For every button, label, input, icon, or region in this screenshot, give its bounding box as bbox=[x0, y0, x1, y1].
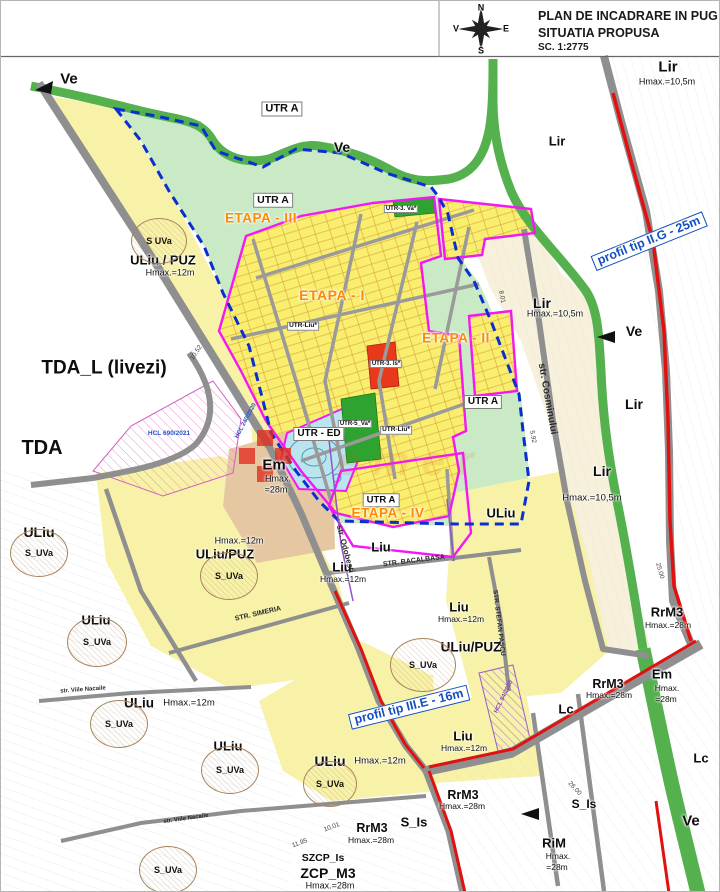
compass-n: N bbox=[478, 4, 485, 13]
ve-label: Ve bbox=[626, 324, 642, 338]
suva-circle: S_UVa bbox=[390, 638, 456, 692]
zone-hmax: Hmax. bbox=[265, 475, 291, 484]
suva-circle: S_UVa bbox=[10, 529, 68, 577]
zone-label-rim: RiM bbox=[542, 837, 566, 850]
zone-hmax: =28m bbox=[265, 486, 288, 495]
suva-circle: S_UVa bbox=[139, 846, 197, 892]
utr-a-label: UTR A bbox=[261, 102, 302, 117]
zone-hmax: Hmax. bbox=[546, 852, 571, 861]
ve-label: Ve bbox=[334, 140, 350, 154]
parcel-label: UTR-3. Va* bbox=[384, 205, 418, 213]
zone-hmax: Hmax.=10,5m bbox=[527, 310, 583, 319]
zone-hmax: =28m bbox=[655, 695, 677, 704]
zone-label-s-is: S_Is bbox=[401, 816, 428, 829]
parcel-label: UTR-3. Is* bbox=[370, 360, 402, 368]
zone-label-tda-l: TDA_L (livezi) bbox=[41, 359, 166, 378]
suva-circle: S_UVa bbox=[201, 746, 259, 794]
zone-label-lir: Lir bbox=[625, 397, 643, 411]
map-title-line2: SITUATIA PROPUSA bbox=[538, 26, 660, 40]
parcel-label: UTR-Liu* bbox=[287, 322, 319, 331]
suva-circle: S_UVa bbox=[200, 552, 258, 600]
zone-label-szcp-is: SZCP_Is bbox=[302, 853, 345, 864]
map-title-line1: PLAN DE INCADRARE IN PUG bbox=[538, 9, 718, 23]
zone-hmax: Hmax.=28m bbox=[439, 802, 485, 811]
zone-hmax: Hmax.=10,5m bbox=[639, 78, 695, 87]
dim-label: 8.01 bbox=[497, 290, 506, 304]
hcl-label: HCL 690/2021 bbox=[148, 431, 190, 438]
ve-label: Ve bbox=[60, 72, 78, 87]
zone-hmax: Hmax.=12m bbox=[320, 575, 366, 584]
zone-label-lir: Lir bbox=[593, 464, 611, 478]
zone-hmax: Hmax.=12m bbox=[146, 269, 195, 278]
zone-label-em: Em bbox=[652, 668, 672, 681]
zone-hmax: Hmax.=12m bbox=[163, 698, 214, 708]
zone-label-tda: TDA bbox=[21, 438, 62, 458]
zone-label-liu: Liu bbox=[449, 601, 469, 614]
parcel-label: UTR-Liu* bbox=[380, 426, 412, 435]
zone-label-zcp-m3: ZCP_M3 bbox=[300, 866, 355, 880]
zone-label-rrm3: RrM3 bbox=[356, 822, 387, 835]
zone-label-lir: Lir bbox=[549, 135, 566, 148]
etapa-2-label: ETAPA - II bbox=[422, 331, 490, 345]
zone-hmax: Hmax.=10,5m bbox=[562, 493, 621, 503]
map-scale: SC. 1:2775 bbox=[538, 42, 589, 53]
utr-a-label: UTR A bbox=[464, 395, 502, 409]
zone-label-rrm3: RrM3 bbox=[592, 678, 623, 691]
suva-circle: S_UVa bbox=[67, 617, 127, 667]
zone-label-em: Em bbox=[262, 458, 285, 473]
utr-a-label: UTR A bbox=[253, 193, 293, 208]
zone-hmax: Hmax.=28m bbox=[586, 691, 632, 700]
zone-hmax: Hmax. bbox=[655, 684, 680, 693]
zone-label-liu: Liu bbox=[371, 541, 391, 554]
zone-hmax: Hmax.=28m bbox=[348, 836, 394, 845]
compass-v: V bbox=[453, 25, 459, 34]
zone-hmax: Hmax.=28m bbox=[645, 621, 691, 630]
parcel-label: UTR-5_Va* bbox=[338, 420, 372, 428]
zone-label-rrm3: RrM3 bbox=[651, 606, 684, 619]
zone-hmax: Hmax.=12m bbox=[215, 537, 264, 546]
zone-label-rrm3: RrM3 bbox=[447, 789, 478, 802]
utr-ed-label: UTR - ED bbox=[293, 427, 344, 441]
compass-e: E bbox=[503, 25, 509, 34]
plan-incadrare-map: emer PLAN DE INCADRARE IN PUG SITUATIA P… bbox=[0, 0, 720, 892]
etapa-1-label: ETAPA - I bbox=[299, 288, 365, 302]
zone-hmax: Hmax.=12m bbox=[438, 615, 484, 624]
zone-label-lc: Lc bbox=[693, 752, 708, 765]
zone-label-lir: Lir bbox=[658, 60, 677, 75]
etapa-3-label: ETAPA - III bbox=[225, 211, 297, 225]
suva-circle: S_UVa bbox=[90, 700, 148, 748]
zone-hmax: =28m bbox=[546, 863, 568, 872]
zone-hmax: Hmax.=12m bbox=[354, 756, 405, 766]
zone-label-s-is: S_Is bbox=[572, 798, 597, 810]
zone-label-liu: Liu bbox=[453, 730, 473, 743]
watermark-text: emer bbox=[337, 437, 485, 485]
zone-label-uliu: ULiu bbox=[487, 507, 516, 520]
suva-circle: S UVa bbox=[131, 218, 187, 264]
etapa-4-label: ETAPA - IV bbox=[351, 506, 424, 520]
dim-label: 5.92 bbox=[528, 430, 537, 444]
zone-hmax: Hmax.=28m bbox=[306, 882, 355, 891]
zone-label-lc: Lc bbox=[558, 703, 573, 716]
suva-circle: S_UVa bbox=[303, 761, 357, 807]
zone-hmax: Hmax.=12m bbox=[441, 744, 487, 753]
compass-s: S bbox=[478, 47, 484, 56]
ve-label: Ve bbox=[682, 814, 700, 829]
